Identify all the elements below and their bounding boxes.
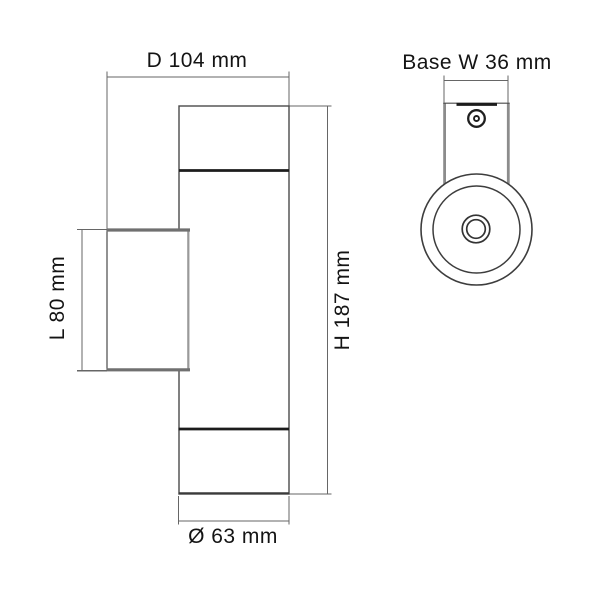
side-view: [77, 72, 332, 525]
dimension-base-width: [444, 76, 508, 104]
dimension-height: [289, 106, 332, 494]
base-width-dimension-label: Base W 36 mm: [402, 51, 552, 75]
mounting-plate: [107, 229, 191, 371]
dimension-length: [77, 230, 107, 372]
length-dimension-label: L 80 mm: [46, 256, 70, 340]
mounting-plate-body: [107, 230, 189, 371]
screw-hole-center: [474, 116, 479, 121]
cylinder-body: [179, 106, 289, 494]
dimension-drawing: D 104 mm Base W 36 mm L 80 mm H 187 mm Ø…: [0, 0, 600, 600]
diameter-dimension-label: Ø 63 mm: [188, 525, 278, 549]
dimension-diameter: [179, 496, 290, 525]
height-dimension-label: H 187 mm: [331, 250, 355, 351]
cylinder-front-face: [421, 174, 532, 285]
front-view: [421, 76, 532, 286]
drawing-geometry: [0, 0, 600, 600]
depth-dimension-label: D 104 mm: [147, 49, 248, 73]
